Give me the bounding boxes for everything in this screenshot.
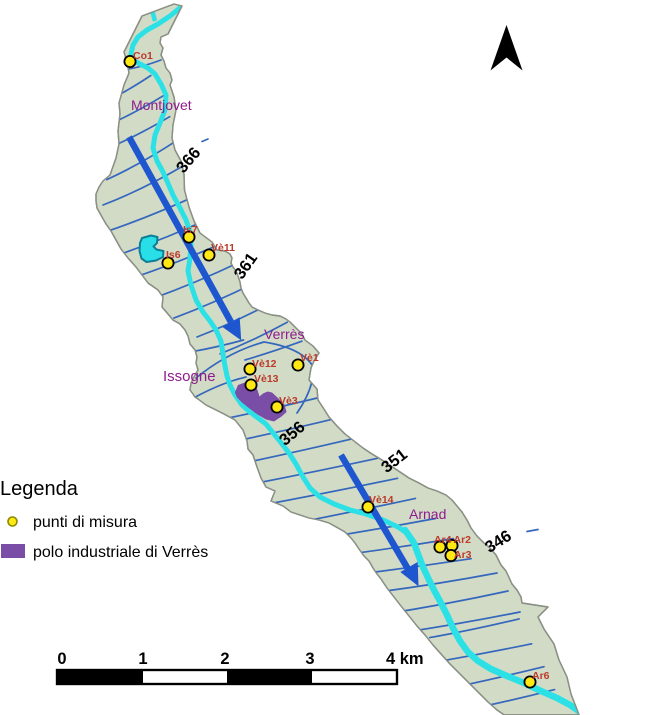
svg-text:Verrès: Verrès [264, 326, 304, 342]
svg-text:Co1: Co1 [133, 50, 153, 62]
svg-text:2: 2 [220, 650, 229, 668]
svg-text:Arnad: Arnad [409, 506, 446, 522]
svg-text:polo industriale di Verrès: polo industriale di Verrès [33, 544, 208, 561]
svg-text:Vè14: Vè14 [369, 494, 394, 506]
svg-text:punti di misura: punti di misura [33, 514, 137, 531]
svg-text:Is7: Is7 [183, 224, 198, 236]
svg-text:Vè13: Vè13 [254, 373, 279, 385]
svg-text:1: 1 [138, 650, 147, 668]
svg-text:Vè12: Vè12 [252, 358, 277, 370]
svg-text:Vè1: Vè1 [300, 352, 319, 364]
svg-text:Legenda: Legenda [0, 478, 79, 500]
svg-text:Ar3: Ar3 [454, 549, 472, 561]
svg-text:Issogne: Issogne [163, 368, 216, 385]
svg-text:Is6: Is6 [166, 249, 181, 261]
svg-text:Vè3: Vè3 [279, 395, 298, 407]
svg-text:Ar6: Ar6 [532, 670, 550, 682]
svg-text:Vè11: Vè11 [211, 242, 235, 254]
svg-text:Ar4: Ar4 [434, 534, 452, 546]
svg-text:Montjovet: Montjovet [131, 97, 192, 113]
svg-text:4 km: 4 km [386, 650, 424, 668]
svg-text:3: 3 [305, 650, 314, 668]
svg-text:0: 0 [57, 650, 66, 668]
svg-text:Ar2: Ar2 [454, 534, 472, 546]
